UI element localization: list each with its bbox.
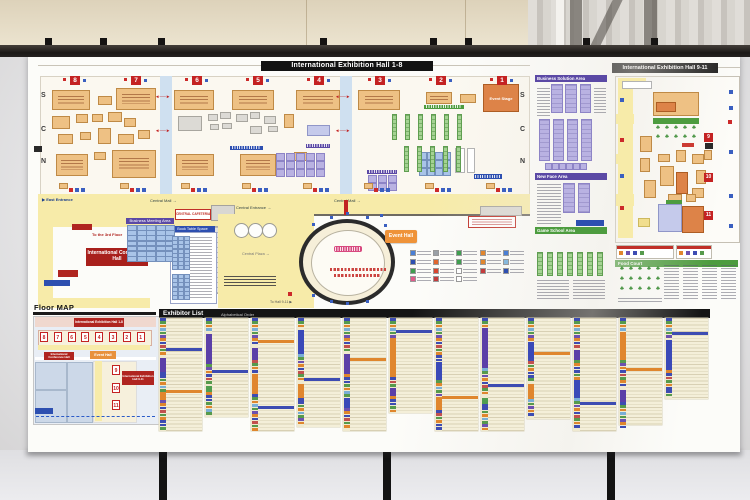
- booth-tag: [620, 402, 626, 405]
- aisle-letter: C: [520, 126, 528, 134]
- booth-tag: [620, 318, 626, 321]
- booth-tag-run: [390, 338, 396, 374]
- booth: [686, 194, 696, 202]
- exhibitor-names: [166, 318, 202, 431]
- meeting-table: [147, 257, 155, 261]
- info-counter-bar: [480, 206, 522, 216]
- booth: [98, 128, 111, 144]
- floor-background: [0, 450, 750, 500]
- hall-gate: [425, 183, 434, 189]
- booth-tag: [574, 401, 580, 404]
- legend-icon: [504, 260, 508, 264]
- legend-text: [487, 269, 501, 273]
- tree-icon: ♣: [620, 286, 626, 292]
- gate-icon-red: [374, 188, 378, 192]
- mid-section-header: Business Solution Area: [535, 75, 607, 82]
- meeting-table: [166, 226, 174, 230]
- booth-tag: [528, 335, 534, 338]
- floor-map-route-line: [36, 416, 155, 417]
- meeting-table: [138, 236, 146, 240]
- booth-tag: [344, 342, 350, 345]
- booth-tag: [436, 325, 442, 328]
- corridor: [616, 154, 632, 164]
- tree-icon: ♣: [656, 134, 662, 140]
- legend-text: [487, 251, 501, 255]
- tree-icon: ♣: [656, 266, 662, 272]
- booth: [222, 123, 232, 129]
- booth-tag: [344, 374, 350, 377]
- booth-tag: [344, 377, 350, 380]
- booth-tag: [528, 368, 534, 371]
- booth: [210, 124, 219, 130]
- hotel-text: [472, 219, 512, 225]
- floor-map-hall-number: 9: [112, 365, 120, 375]
- legend-dot: [700, 251, 704, 255]
- gate-icon-blue: [81, 188, 85, 192]
- booth-name-text: [365, 96, 394, 105]
- booth-tag: [344, 411, 350, 414]
- hall-number: 4: [314, 76, 324, 85]
- booth: [236, 114, 248, 122]
- booth-tag: [436, 342, 442, 345]
- booth-tag: [390, 328, 396, 331]
- booth: [250, 112, 260, 119]
- facility-icon: [729, 194, 733, 198]
- booth-tag: [574, 415, 580, 418]
- booth: [296, 90, 340, 110]
- book-table: [173, 283, 177, 286]
- exhibitor-column: [481, 318, 524, 431]
- meeting-table: [147, 252, 155, 256]
- aisle-letter: N: [41, 158, 49, 166]
- hall-gate: [181, 183, 190, 189]
- hall-number: 1: [497, 76, 507, 85]
- booth-tag: [528, 332, 534, 335]
- booth-tag: [298, 398, 304, 401]
- area-header-text: [369, 170, 396, 173]
- legend-text: [417, 251, 431, 255]
- aisle-letter: S: [520, 92, 528, 100]
- booth-tag: [666, 387, 672, 390]
- map-legend-box: [616, 245, 674, 259]
- booth-tag: [436, 349, 442, 352]
- booth-tag: [390, 406, 396, 409]
- booth-strip: [404, 146, 409, 172]
- list-section-bar: [396, 330, 432, 333]
- booth-tag: [436, 420, 442, 423]
- floor-map-hall911-label: International Exhibition Hall 9-11: [122, 371, 154, 385]
- hall-number: 2: [436, 76, 446, 85]
- booth-tag: [252, 332, 258, 335]
- list-section-bar: [626, 368, 662, 371]
- exhibitor-list-title: Exhibitor List: [163, 310, 203, 317]
- booth-tag: [574, 405, 580, 408]
- floor-map-hall-number: 5: [81, 332, 89, 342]
- booth-tag: [574, 367, 580, 370]
- booth-tag: [482, 371, 488, 374]
- book-table: [173, 292, 177, 295]
- booth-tag: [528, 372, 534, 375]
- booth-tag: [344, 391, 350, 394]
- area-header-text: [307, 144, 329, 147]
- business-meeting-area-header: Business Meeting Area: [126, 218, 174, 224]
- stand-top-rail: [0, 45, 750, 57]
- exhibitor-column: [435, 318, 478, 431]
- booth-tag: [436, 318, 442, 321]
- hall911-title: International Exhibition Hall 9-11: [612, 63, 718, 73]
- floor-map-mall: [38, 345, 150, 350]
- legend-icon: [504, 269, 508, 273]
- tree-icon: ♣: [629, 276, 635, 282]
- booth-tag: [666, 328, 672, 331]
- booth-strip: [392, 114, 397, 140]
- book-table: [179, 296, 183, 299]
- legend-icon: [434, 260, 438, 264]
- booth-cell: [297, 154, 304, 160]
- facility-icon: [729, 90, 733, 94]
- tree-icon: ♣: [620, 266, 626, 272]
- booth-tag: [206, 367, 212, 370]
- floor-map-title: Floor MAP: [34, 303, 74, 312]
- booth-tag-run: [666, 340, 672, 370]
- floor-map-hall-number: 10: [112, 383, 120, 393]
- booth: [92, 114, 103, 122]
- booth-strip: [418, 114, 423, 140]
- booth: [660, 166, 674, 186]
- booth: [220, 112, 231, 119]
- booth-tag: [160, 414, 166, 417]
- booth-name-text: [58, 96, 84, 105]
- booth-cell: [389, 176, 396, 182]
- tree-icon: ♣: [656, 125, 662, 131]
- food-court-list-text: [664, 265, 679, 301]
- facility-icon: [366, 216, 369, 219]
- floor-map-hall-number: 11: [112, 400, 120, 410]
- booth-strip: [547, 252, 553, 276]
- booth-tag: [436, 335, 442, 338]
- booth: [268, 126, 278, 132]
- east-entrance-text: ▶ East Entrance: [42, 197, 73, 202]
- facility-icon: [620, 98, 624, 102]
- area-tag: [44, 280, 70, 286]
- booth-name-text: [122, 94, 149, 104]
- tree-icon: ♣: [665, 134, 671, 140]
- booth: [94, 152, 106, 160]
- seating-rows: [330, 268, 386, 271]
- tree-icon: ♣: [692, 134, 698, 140]
- floor-map-hall-number: 3: [109, 332, 117, 342]
- booth-tag: [252, 328, 258, 331]
- booth-tag: [160, 410, 166, 413]
- booth-tag: [160, 427, 166, 430]
- booth-tag: [160, 349, 166, 352]
- legend-text: [417, 277, 431, 281]
- booth-tag-run: [160, 392, 166, 400]
- booth-tag: [252, 421, 258, 424]
- info-icon: [388, 79, 391, 82]
- area-tag: [58, 270, 78, 277]
- booth-tag: [482, 318, 488, 321]
- event-hall-badge: Event Hall: [385, 230, 417, 243]
- exhibitor-names: [350, 318, 386, 431]
- booth: [208, 114, 218, 121]
- booth-strip: [443, 146, 448, 172]
- meeting-table: [147, 242, 155, 246]
- booth: [658, 204, 682, 232]
- booth-tag: [298, 405, 304, 408]
- booth-tag: [252, 363, 258, 366]
- booth-tag: [344, 321, 350, 324]
- tree-icon: ♣: [674, 134, 680, 140]
- exhibitor-names: [672, 318, 708, 399]
- booth-tag-run: [574, 380, 580, 398]
- booth: [138, 130, 150, 139]
- booth-tag-run: [528, 342, 534, 358]
- list-section-bar: [304, 378, 340, 381]
- pole-behind-curtain: [570, 0, 582, 47]
- photo-of-floor-map-poster: International Exhibition Hall 1-8 ▶ East…: [0, 0, 750, 500]
- legend-icon: [411, 251, 415, 255]
- booth-tag: [390, 377, 396, 380]
- booth-tag: [390, 396, 396, 399]
- gate-icon-red: [191, 188, 195, 192]
- booth-cell: [317, 154, 324, 160]
- booth-tag: [206, 364, 212, 367]
- booth-tag: [252, 404, 258, 407]
- book-table: [185, 250, 189, 253]
- legend-icon: [481, 251, 485, 255]
- meeting-table: [157, 257, 165, 261]
- booth-name-text: [119, 158, 149, 170]
- booth-tag: [482, 411, 488, 414]
- booth: [178, 116, 202, 131]
- booth: [58, 134, 73, 144]
- booth-tag: [436, 390, 442, 393]
- area-header-text: [426, 105, 462, 108]
- booth-tag: [252, 411, 258, 414]
- booth-tag: [298, 364, 304, 367]
- booth-tag: [482, 368, 488, 371]
- meeting-table: [147, 247, 155, 251]
- booth-tag: [528, 338, 534, 341]
- meeting-table: [128, 252, 136, 256]
- booth-tag: [574, 345, 580, 348]
- booth-tag: [252, 394, 258, 397]
- info-icon: [327, 79, 330, 82]
- booth-tag: [436, 387, 442, 390]
- event-hall-floor: [311, 230, 385, 296]
- legend-icon: [411, 260, 415, 264]
- booth-tag: [298, 321, 304, 324]
- book-table: [185, 279, 189, 282]
- booth-tag: [482, 424, 488, 427]
- exhibitor-names: [442, 318, 478, 431]
- legend-text: [463, 251, 477, 255]
- floor-map-hall-number: 7: [54, 332, 62, 342]
- curtain-gap: [556, 0, 564, 47]
- booth-tag: [574, 360, 580, 363]
- tree-icon: ♣: [629, 286, 635, 292]
- legend-dot: [626, 251, 630, 255]
- booth-tag: [620, 377, 626, 380]
- meeting-table: [157, 226, 165, 230]
- booth-strip: [540, 120, 549, 160]
- booth-tag: [160, 328, 166, 331]
- booth-tag: [390, 381, 396, 384]
- book-table: [185, 288, 189, 291]
- booth-tag-run: [436, 400, 442, 410]
- meeting-table: [147, 231, 155, 235]
- book-table-list-text: [190, 237, 212, 299]
- booth-tag: [482, 385, 488, 388]
- booth-name-text: [430, 96, 447, 101]
- seating-rows: [334, 274, 380, 277]
- toilet-icon: [246, 78, 249, 81]
- legend-text: [440, 277, 454, 281]
- booth: [704, 150, 712, 160]
- booth-cell: [297, 162, 304, 168]
- booth-tag: [528, 365, 534, 368]
- booth-tag: [390, 403, 396, 406]
- book-table: [185, 266, 189, 269]
- booth-strip: [577, 252, 583, 276]
- booth-tag: [666, 325, 672, 328]
- book-table: [179, 283, 183, 286]
- legend-icon: [457, 269, 461, 273]
- legend-text: [510, 269, 524, 273]
- facility-icon: [729, 150, 733, 154]
- booth-strip: [587, 252, 593, 276]
- hall18-title: International Exhibition Hall 1-8: [261, 61, 433, 71]
- booth-name-text: [239, 96, 268, 105]
- booth-name-text: [246, 160, 270, 170]
- legend-text: [440, 260, 454, 264]
- tree-icon: ♣: [647, 276, 653, 282]
- booth-cell: [436, 153, 442, 159]
- legend-text: [440, 269, 454, 273]
- meeting-table: [147, 226, 155, 230]
- food-court-list-text: [618, 298, 662, 303]
- legend-icon: [411, 269, 415, 273]
- hall-gate: [242, 183, 251, 189]
- facility-icon: [384, 224, 387, 227]
- booth-tag: [344, 381, 350, 384]
- east-entrance-label: ▶ East Entrance: [42, 197, 73, 202]
- gate-icon-red: [252, 188, 256, 192]
- facility-icon: [620, 138, 624, 142]
- meeting-table: [138, 257, 146, 261]
- facility-icon: [330, 216, 333, 219]
- facility-icon: [728, 120, 732, 124]
- booth-tag: [574, 422, 580, 425]
- book-table: [179, 279, 183, 282]
- booth-tag: [620, 416, 626, 419]
- gate-icon-blue: [319, 188, 323, 192]
- booth: [358, 90, 400, 110]
- floor-map-hall-number: 4: [95, 332, 103, 342]
- corridor: [616, 114, 634, 124]
- booth-tag-run: [574, 350, 580, 360]
- booth-tag-run: [298, 384, 304, 398]
- tiny-text: [594, 88, 606, 114]
- legend-icon: [411, 277, 415, 281]
- exhibitor-list-subtitle: Alphabetical Order: [221, 312, 254, 317]
- booth-cell: [574, 164, 579, 169]
- booth-tag: [206, 378, 212, 381]
- meeting-table: [128, 247, 136, 251]
- booth-tag: [528, 378, 534, 381]
- meeting-table: [147, 236, 155, 240]
- booth-tag: [482, 378, 488, 381]
- booth: [307, 125, 330, 136]
- booth-tag-run: [620, 332, 626, 360]
- exhibitor-column: [619, 318, 662, 425]
- book-table: [173, 262, 177, 265]
- booth-tag: [344, 425, 350, 428]
- booth-tag: [344, 325, 350, 328]
- stand-leg: [607, 450, 615, 500]
- booth-tag: [252, 318, 258, 321]
- book-table: [173, 237, 177, 240]
- booth-tag: [436, 410, 442, 413]
- booth-tag: [160, 372, 166, 375]
- booth-tag: [344, 332, 350, 335]
- tree-icon: ♣: [683, 125, 689, 131]
- booth-tag: [160, 382, 166, 385]
- legend-dot: [686, 251, 690, 255]
- booth: [658, 154, 670, 162]
- to-hall-9-11-label: To Hall 9-11 ▶: [270, 300, 292, 304]
- list-section-bar: [258, 406, 294, 409]
- booth-tag: [528, 410, 534, 413]
- booth-cell: [436, 161, 442, 167]
- booth-tag: [620, 412, 626, 415]
- booth-strip: [568, 120, 577, 160]
- floor-map-underline: [33, 312, 156, 315]
- booth-tag: [298, 325, 304, 328]
- booth-tag: [252, 408, 258, 411]
- booth-tag: [620, 367, 626, 370]
- facility-icon: [312, 294, 315, 297]
- central-entrance-label: Central Entrance →: [236, 205, 271, 210]
- booth-tag: [482, 421, 488, 424]
- area-header: [367, 170, 397, 174]
- booth-strip: [567, 252, 573, 276]
- book-table: [185, 254, 189, 257]
- tree-icon: ♣: [674, 125, 680, 131]
- hall-gate: [120, 183, 129, 189]
- food-court-list-text: [683, 265, 698, 301]
- hall-gate: [364, 183, 373, 189]
- meeting-table: [128, 257, 136, 261]
- booth-tag: [160, 332, 166, 335]
- facility-icon: [346, 302, 349, 305]
- tiny-text: [537, 88, 550, 118]
- meeting-table: [138, 247, 146, 251]
- booth-strip: [597, 252, 603, 276]
- booth: [250, 126, 262, 134]
- booth-tag: [436, 355, 442, 358]
- booth-tag: [344, 415, 350, 418]
- floor-map-hall18-label: International Exhibition Hall 1-8: [74, 318, 124, 327]
- mid-section-header: Game School Area: [535, 227, 607, 234]
- tree-icon: ♣: [656, 286, 662, 292]
- legend-text: [510, 260, 524, 264]
- book-table: [173, 288, 177, 291]
- booth-tag: [206, 406, 212, 409]
- floor-map-hall-number: 6: [68, 332, 76, 342]
- event-stage-chip: [334, 246, 362, 252]
